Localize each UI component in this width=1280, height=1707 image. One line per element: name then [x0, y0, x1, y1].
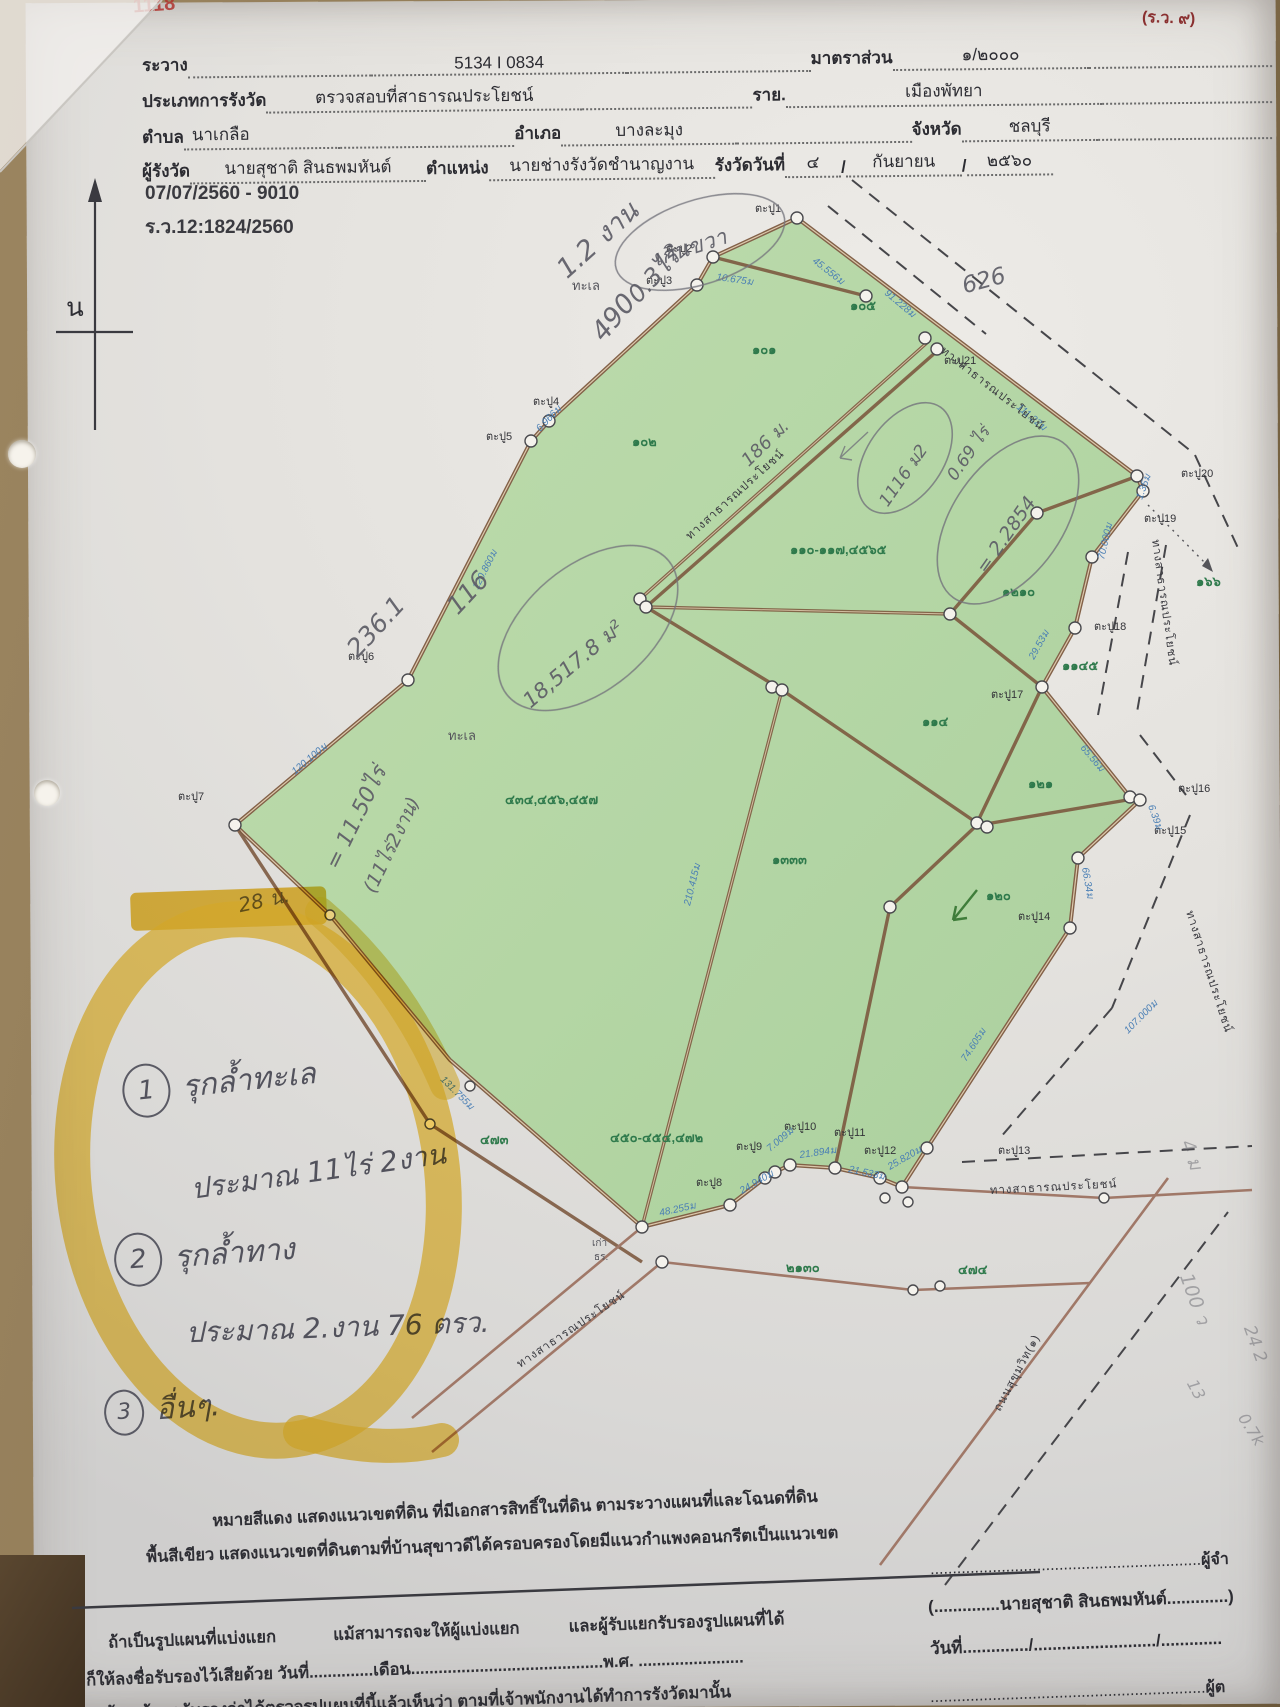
signer-role: ผู้จำ: [1201, 1551, 1229, 1569]
dotted-field: ..............: [309, 1661, 374, 1681]
footer-text: เดือน: [373, 1660, 411, 1679]
footer-text: แม้สามารถจะให้ผู้แบ่งแยก: [333, 1619, 520, 1643]
scanned-survey-photo: 1118 (ร.ว. ๙) ระวาง 5134 I 0834 มาตราส่ว…: [0, 0, 1280, 1707]
yellow-highlighter: [0, 0, 1280, 1707]
paper-crease: [0, 0, 300, 250]
footer-text: และผู้รับแยกรับรองรูปแผนที่ได้: [568, 1610, 784, 1636]
footer-text: ถ้าเป็นรูปแผนที่แบ่งแยก: [108, 1628, 276, 1652]
footer-text: ก็ให้ลงชื่อรับรองไว้เสียด้วย วันที่: [86, 1664, 309, 1690]
dotted-field: .......................: [633, 1649, 744, 1671]
signer-role: ผู้ต: [1205, 1679, 1225, 1697]
footer-text: พ.ศ.: [603, 1652, 634, 1671]
dotted-field: ........................................…: [410, 1653, 603, 1678]
